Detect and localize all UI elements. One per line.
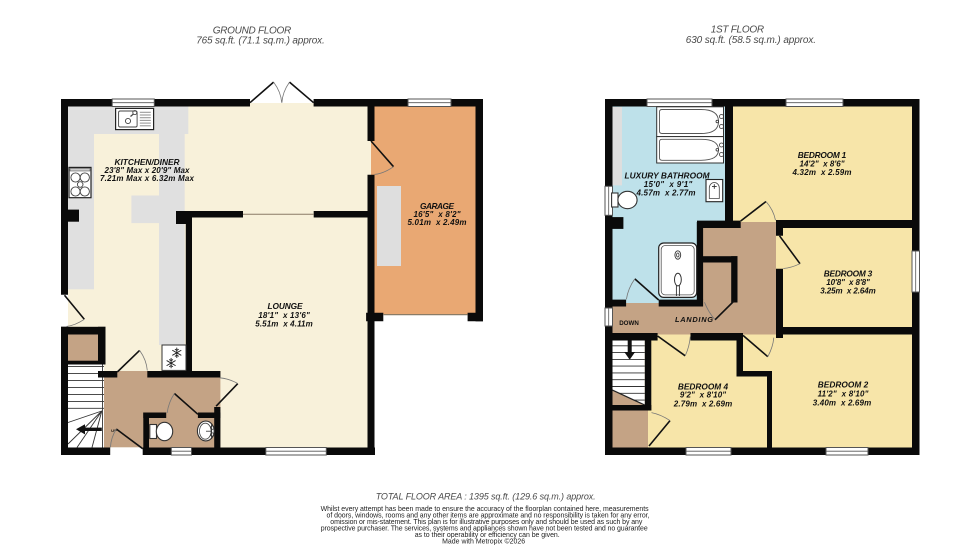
svg-text:3.25m x 2.64m: 3.25m x 2.64m	[820, 287, 876, 296]
svg-text:LUXURY BATHROOM: LUXURY BATHROOM	[625, 171, 711, 181]
svg-text:5.51m x 4.11m: 5.51m x 4.11m	[255, 320, 313, 329]
svg-text:5.01m x 2.49m: 5.01m x 2.49m	[408, 218, 467, 227]
svg-text:9'2" x 8'10": 9'2" x 8'10"	[680, 391, 726, 400]
svg-text:BEDROOM 3: BEDROOM 3	[824, 269, 873, 279]
svg-text:LOUNGE: LOUNGE	[268, 301, 303, 311]
svg-text:BEDROOM 1: BEDROOM 1	[798, 150, 847, 160]
svg-text:Made with Metropix ©2026: Made with Metropix ©2026	[442, 538, 525, 546]
svg-text:BEDROOM 2: BEDROOM 2	[818, 380, 869, 390]
svg-text:TOTAL FLOOR AREA : 1395 sq.ft.: TOTAL FLOOR AREA : 1395 sq.ft. (129.6 sq…	[376, 492, 596, 502]
svg-text:4.57m x 2.77m: 4.57m x 2.77m	[636, 189, 696, 198]
svg-text:630 sq.ft. (58.5 sq.m.) approx: 630 sq.ft. (58.5 sq.m.) approx.	[686, 35, 816, 46]
svg-text:DOWN: DOWN	[619, 320, 639, 327]
svg-text:3.40m x 2.69m: 3.40m x 2.69m	[813, 399, 872, 408]
svg-text:7.21m Max x 6.32m Max: 7.21m Max x 6.32m Max	[100, 174, 195, 183]
svg-text:4.32m x 2.59m: 4.32m x 2.59m	[792, 168, 852, 177]
svg-text:2.79m x 2.69m: 2.79m x 2.69m	[673, 400, 732, 409]
svg-text:1ST FLOOR: 1ST FLOOR	[711, 25, 764, 36]
svg-text:LANDING: LANDING	[675, 315, 713, 324]
svg-text:11'2" x 8'10": 11'2" x 8'10"	[818, 390, 869, 399]
svg-text:765 sq.ft. (71.1 sq.m.) approx: 765 sq.ft. (71.1 sq.m.) approx.	[196, 36, 325, 47]
